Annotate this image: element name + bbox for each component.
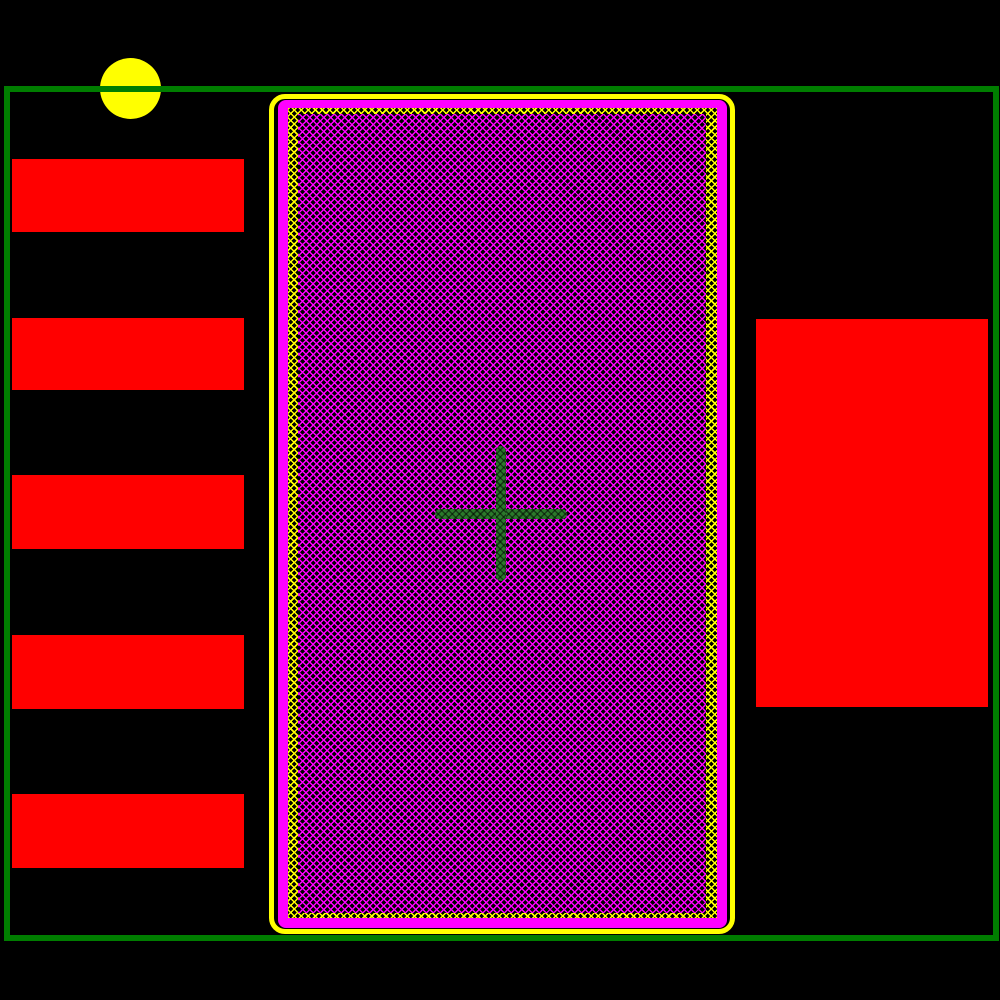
left-pad-3[interactable] <box>12 475 244 549</box>
left-pad-5[interactable] <box>12 794 244 868</box>
origin-crosshair-vertical <box>496 446 506 581</box>
right-pad[interactable] <box>756 319 988 707</box>
pcb-footprint-viewport[interactable] <box>0 0 1000 1000</box>
left-pad-4[interactable] <box>12 635 244 709</box>
left-pad-2[interactable] <box>12 318 244 390</box>
left-pad-1[interactable] <box>12 159 244 232</box>
